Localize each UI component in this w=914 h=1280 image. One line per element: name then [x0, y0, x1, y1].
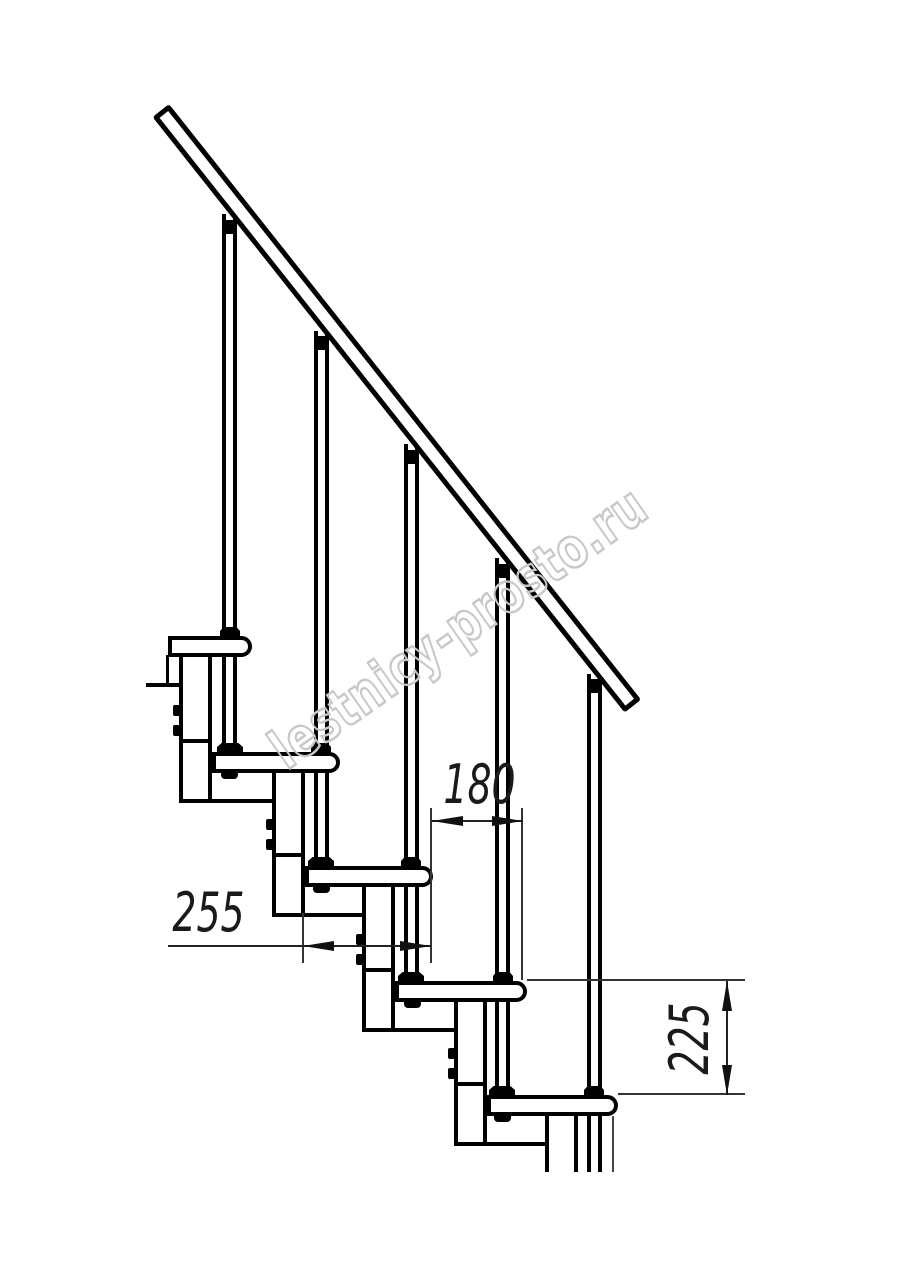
drawing-cut-edge: [166, 655, 169, 687]
handrail-connector-1: [223, 220, 237, 234]
dim-225-label: 225: [663, 1007, 717, 1074]
baluster-2: [314, 331, 329, 870]
staircase-technical-drawing: 180 255 225 lestnicy-prosto.ru: [0, 0, 914, 1280]
baluster-nut-3: [404, 1001, 421, 1008]
support-column-5: [545, 1111, 578, 1172]
baluster-1: [222, 214, 237, 756]
extension-line-255-left: [302, 913, 304, 963]
baluster-nut-2: [313, 886, 330, 893]
handrail-connector-5: [588, 679, 602, 693]
dim-180-arrow-right: [492, 816, 523, 826]
column-bolt-2a: [266, 819, 275, 830]
support-column-2: [272, 768, 305, 853]
baluster-foot-4: [489, 1086, 515, 1095]
column-bolt-1b: [173, 725, 182, 736]
dim-255-line: [168, 945, 431, 947]
column-bolt-3a: [356, 934, 365, 945]
cut-line-bottom: [612, 1116, 614, 1172]
module-arm-line-5: [454, 1142, 549, 1146]
extension-line-225-top: [527, 979, 745, 981]
tread-3: [305, 866, 433, 887]
handrail-connector-3: [405, 450, 419, 464]
column-joint-2: [272, 853, 305, 917]
module-arm-line-2: [179, 799, 276, 803]
dim-255-arrow-right: [400, 941, 431, 951]
module-arm-line-1: [146, 683, 183, 687]
baluster-foot-1: [217, 743, 243, 752]
column-joint-3: [362, 968, 395, 1031]
dim-225-arrow-up: [722, 981, 732, 1011]
baluster-cap-3: [401, 857, 421, 866]
baluster-cap-4: [493, 972, 513, 981]
column-joint-4: [454, 1082, 487, 1146]
module-arm-line-4: [362, 1028, 458, 1032]
tread-1: [168, 636, 252, 657]
baluster-nut-1: [221, 772, 238, 779]
baluster-3: [404, 444, 419, 985]
column-bolt-2b: [266, 839, 275, 850]
column-joint-1: [179, 739, 212, 803]
dim-255-arrow-left: [303, 941, 334, 951]
dim-225-arrow-down: [722, 1065, 732, 1095]
dim-255-label: 255: [172, 886, 239, 940]
support-column-1: [179, 652, 212, 739]
baluster-foot-3: [398, 972, 424, 981]
extension-line-180-left: [430, 808, 432, 963]
baluster-cap-5: [584, 1086, 604, 1095]
handrail-connector-2: [315, 336, 329, 350]
dim-180-label: 180: [443, 758, 510, 812]
support-column-3: [362, 882, 395, 968]
module-arm-line-3: [272, 913, 366, 917]
baluster-foot-2: [308, 857, 334, 866]
column-bolt-4a: [448, 1048, 457, 1059]
column-bolt-1a: [173, 705, 182, 716]
baluster-nut-4: [494, 1115, 511, 1122]
tread-5: [487, 1095, 618, 1116]
column-bolt-3b: [356, 954, 365, 965]
column-bolt-4b: [448, 1068, 457, 1079]
tread-4: [395, 981, 527, 1002]
support-column-4: [454, 997, 487, 1082]
extension-line-180-right: [521, 808, 523, 980]
dim-180-arrow-left: [432, 816, 463, 826]
baluster-cap-1: [220, 627, 240, 636]
